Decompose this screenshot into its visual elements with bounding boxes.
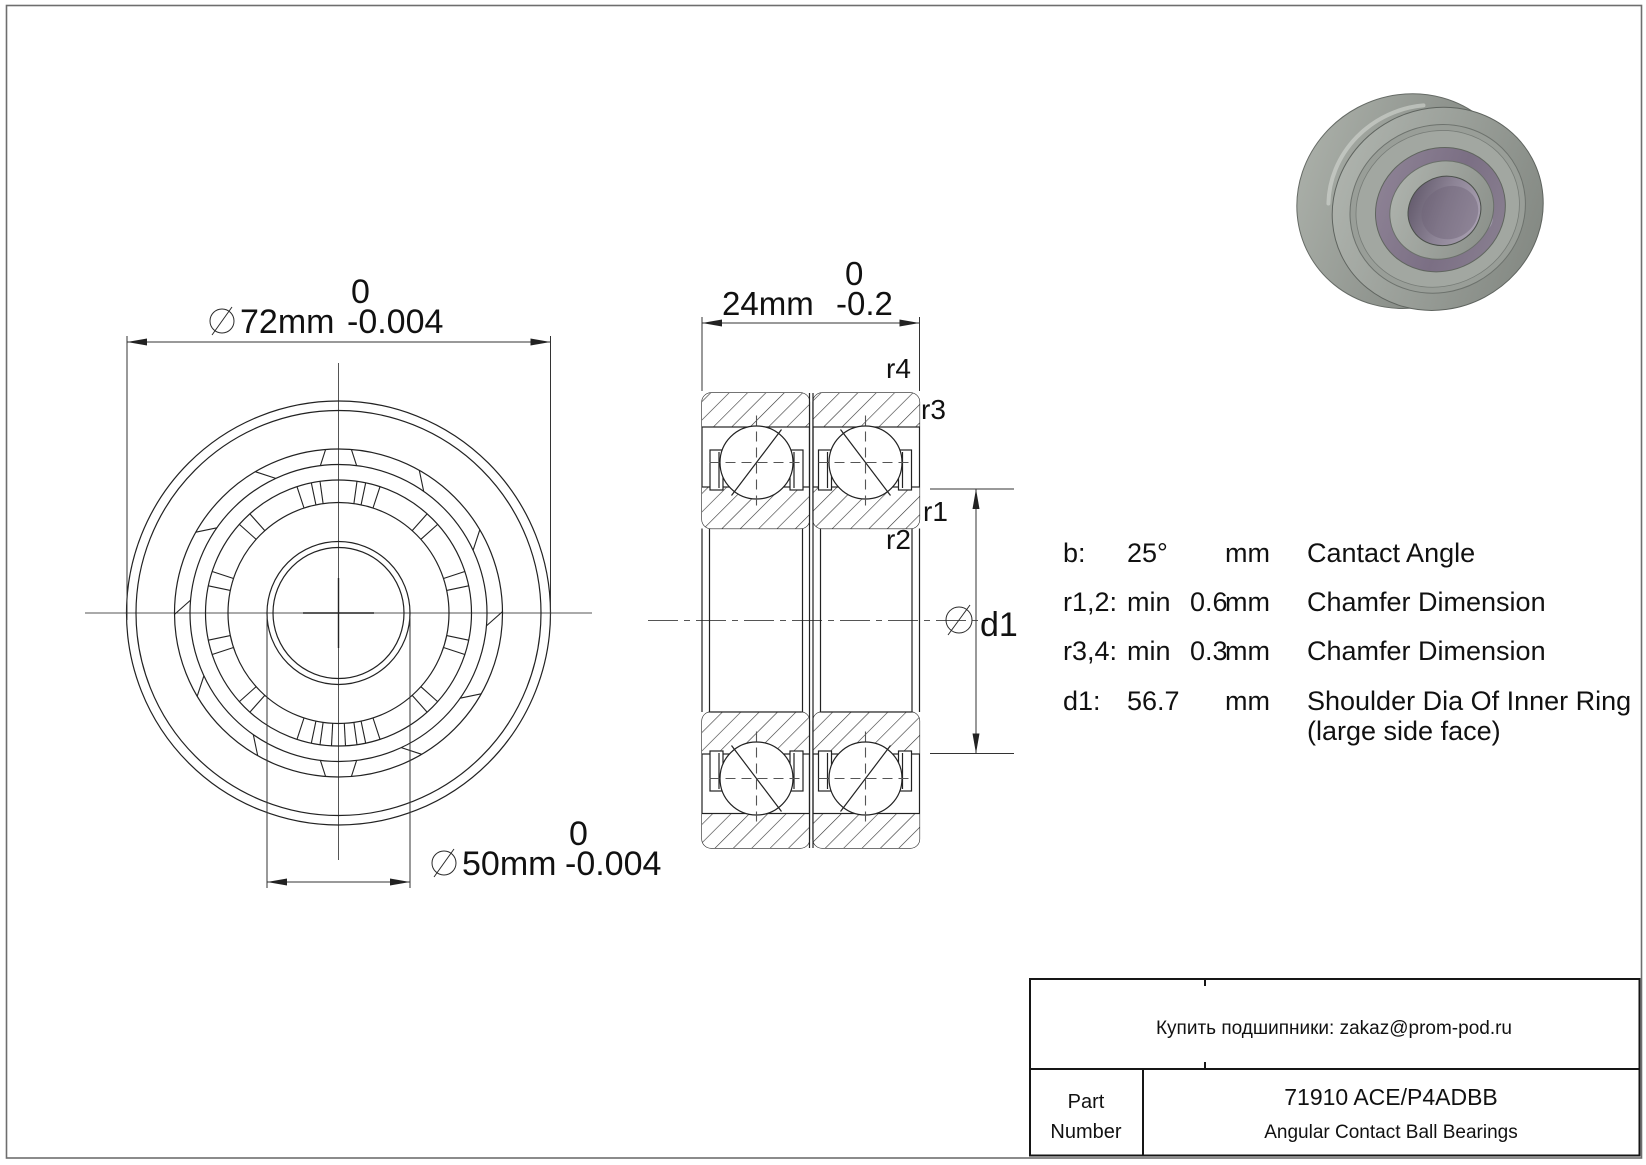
spec-value: 0.3 [1190,636,1228,666]
spec-unit: mm [1225,538,1270,568]
part-number: 71910 ACE/P4ADBB [1284,1084,1498,1110]
drawing-page: 72mm 0 -0.004 50mm 0 -0.004 [0,0,1646,1165]
spec-label: r1,2: [1063,587,1117,617]
spec-value: 25° [1127,538,1168,568]
spec-row-shoulder-dia: d1: 56.7 mm Shoulder Dia Of Inner Ring (… [1063,686,1631,746]
part-label-line2: Number [1050,1121,1121,1143]
spec-row-contact-angle: b: 25° mm Cantact Angle [1063,538,1475,568]
width-value: 24mm [722,285,814,322]
diameter-symbol-icon [210,307,234,335]
shoulder-diameter-dimension: d1 [930,489,1018,754]
diameter-symbol-icon [432,849,456,877]
spec-row-chamfer-r12: r1,2: min 0.6 mm Chamfer Dimension [1063,587,1546,617]
spec-qualifier: min [1127,587,1171,617]
contact-line: Купить подшипники: zakaz@prom-pod.ru [1156,1018,1512,1039]
chamfer-label-r4: r4 [886,353,911,384]
front-view: 72mm 0 -0.004 50mm 0 -0.004 [85,273,661,888]
spec-label: b: [1063,538,1086,568]
spec-unit: mm [1225,686,1270,716]
spec-description: Cantact Angle [1307,538,1475,568]
title-block: Купить подшипники: zakaz@prom-pod.ru Par… [1030,979,1640,1156]
bore-diameter-dimension: 50mm 0 -0.004 [267,618,661,888]
chamfer-label-r2: r2 [886,524,911,555]
spec-description: Shoulder Dia Of Inner Ring [1307,686,1631,716]
spec-description: Chamfer Dimension [1307,587,1546,617]
section-view: 24mm 0 -0.2 r4 r3 r1 r2 d1 [648,255,1018,849]
spec-value: 0.6 [1190,587,1228,617]
spec-value: 56.7 [1127,686,1180,716]
chamfer-label-r1: r1 [923,496,948,527]
part-type: Angular Contact Ball Bearings [1264,1122,1517,1143]
spec-description-line2: (large side face) [1307,716,1501,746]
spec-label: r3,4: [1063,636,1117,666]
spec-unit: mm [1225,587,1270,617]
width-tol-lower: -0.2 [836,285,893,322]
chamfer-label-r3: r3 [921,394,946,425]
spec-qualifier: min [1127,636,1171,666]
spec-unit: mm [1225,636,1270,666]
bore-diameter-value: 50mm [462,845,556,883]
technical-drawing-canvas: 72mm 0 -0.004 50mm 0 -0.004 [0,0,1646,1165]
bore-diameter-tol-lower: -0.004 [565,845,661,883]
outer-diameter-tol-lower: -0.004 [347,303,443,341]
outer-diameter-value: 72mm [240,303,334,341]
part-label-line1: Part [1068,1091,1105,1113]
spec-row-chamfer-r34: r3,4: min 0.3 mm Chamfer Dimension [1063,636,1546,666]
spec-table: b: 25° mm Cantact Angle r1,2: min 0.6 mm… [1063,538,1631,746]
shoulder-dim-label: d1 [980,606,1018,644]
spec-description: Chamfer Dimension [1307,636,1546,666]
spec-label: d1: [1063,686,1101,716]
bearing-3d-render [1259,46,1579,360]
